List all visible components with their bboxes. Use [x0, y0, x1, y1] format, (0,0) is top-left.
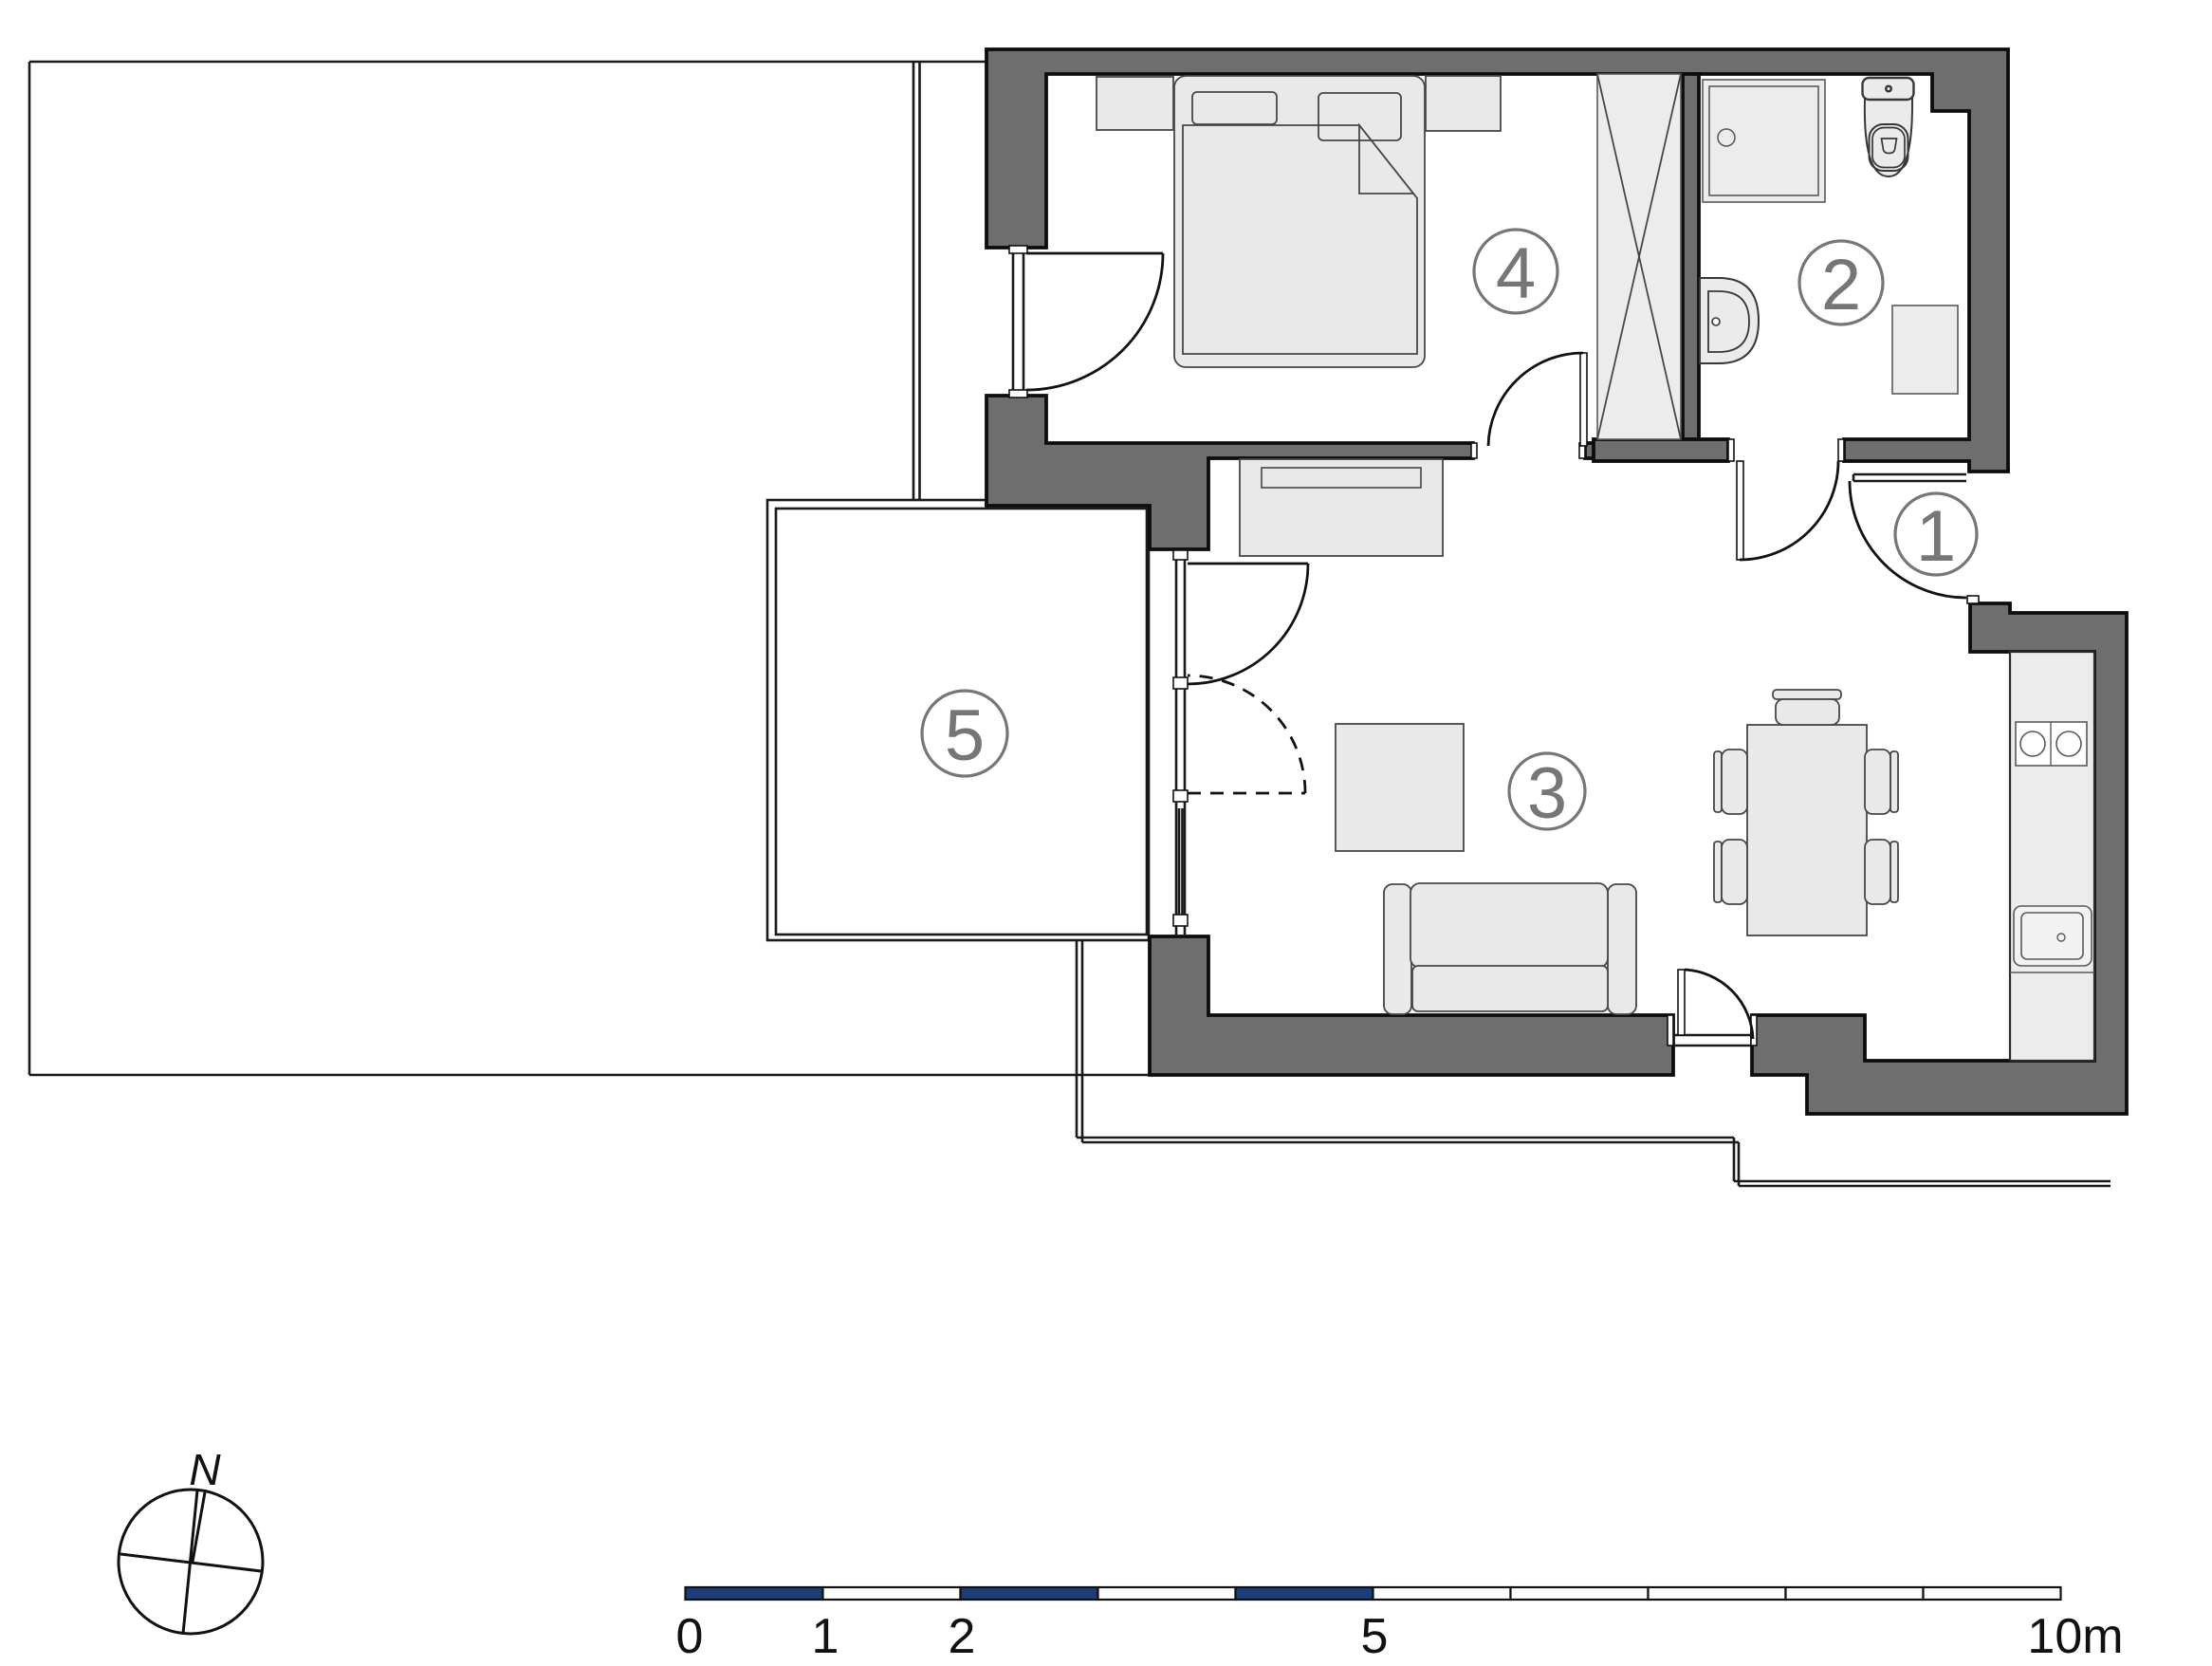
svg-text:0: 0 [676, 1609, 704, 1664]
svg-text:2: 2 [949, 1609, 976, 1664]
svg-text:3: 3 [1527, 753, 1567, 834]
svg-text:1: 1 [812, 1609, 839, 1664]
svg-text:2: 2 [1821, 245, 1861, 325]
svg-text:10m: 10m [2027, 1609, 2123, 1664]
svg-text:5: 5 [945, 695, 985, 776]
svg-text:N: N [189, 1445, 221, 1494]
svg-text:5: 5 [1361, 1609, 1389, 1664]
svg-text:1: 1 [1916, 496, 1956, 577]
svg-text:4: 4 [1496, 233, 1536, 314]
